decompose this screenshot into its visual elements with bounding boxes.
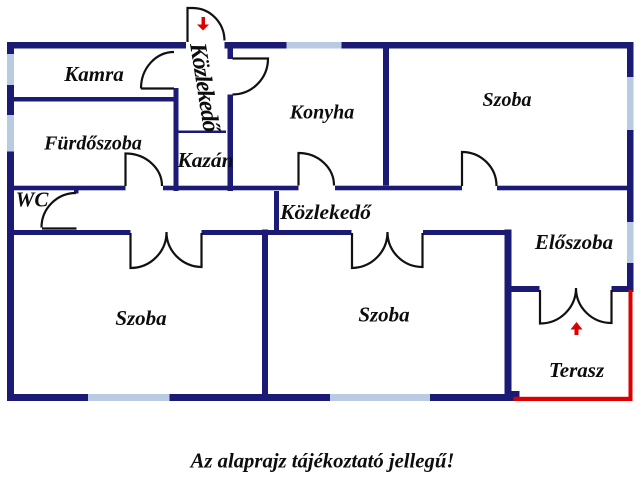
svg-text:WC: WC [16,188,50,212]
svg-text:Szoba: Szoba [358,303,409,327]
svg-text:Fürdőszoba: Fürdőszoba [43,133,142,155]
svg-text:Kazán: Kazán [176,148,233,172]
svg-text:Az alaprajz tájékoztató jelleg: Az alaprajz tájékoztató jellegű! [189,451,455,473]
svg-text:Terasz: Terasz [549,358,605,382]
svg-text:Kamra: Kamra [63,62,124,86]
svg-text:Közlekedő: Közlekedő [279,200,372,224]
svg-text:Szoba: Szoba [483,89,532,111]
svg-text:Előszoba: Előszoba [534,230,613,254]
svg-text:Konyha: Konyha [289,102,354,124]
svg-text:Szoba: Szoba [115,306,166,330]
